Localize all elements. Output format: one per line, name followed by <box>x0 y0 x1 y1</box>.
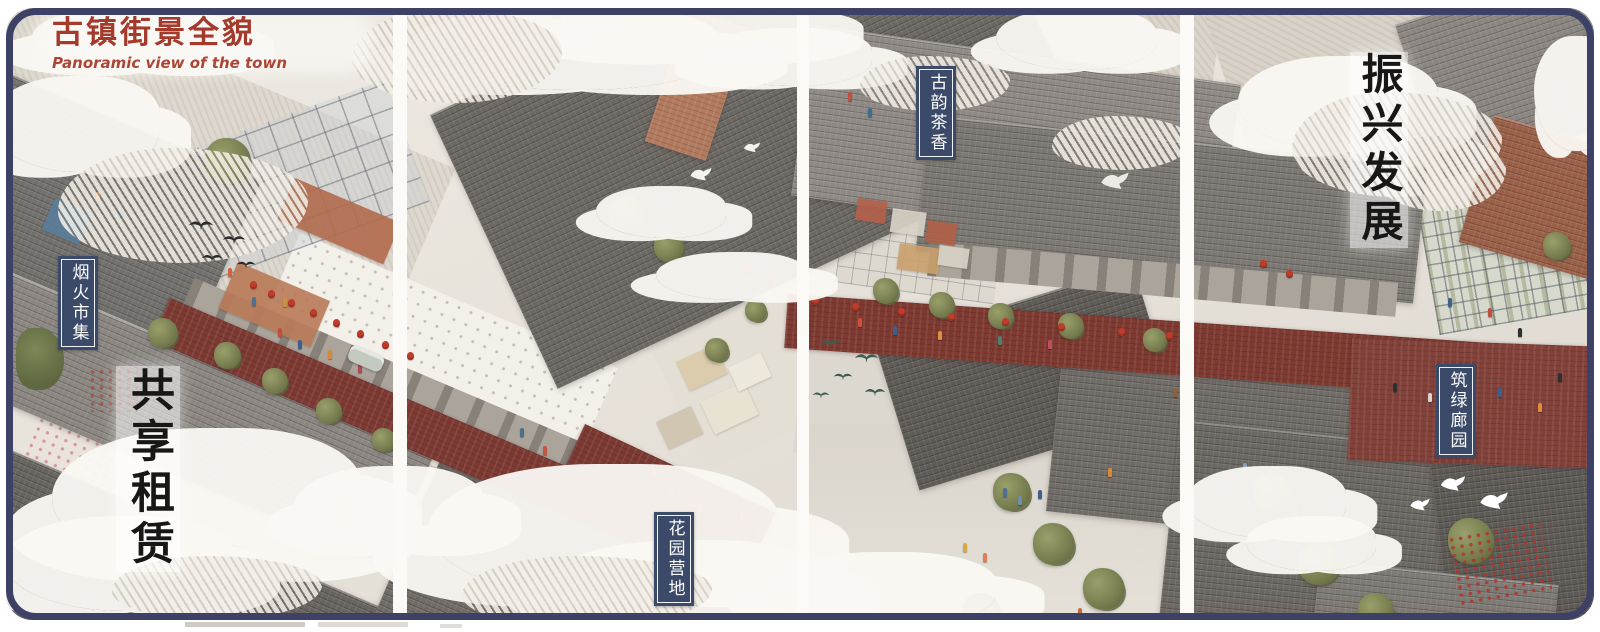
cloud-shape <box>996 8 1156 70</box>
swallow-icon <box>222 230 246 249</box>
tree-shape <box>214 342 241 369</box>
person-figure <box>1173 388 1177 397</box>
person-figure <box>228 268 232 277</box>
canopy-shape <box>937 245 969 269</box>
lantern-shape <box>310 309 317 317</box>
person-figure <box>1518 328 1522 337</box>
cloud-shape <box>656 252 806 300</box>
dove-icon <box>1477 490 1511 515</box>
tree-shape <box>1543 232 1571 260</box>
lantern-shape <box>1118 328 1125 336</box>
panel-divider <box>797 8 809 620</box>
cloud-shape <box>1246 516 1376 571</box>
cropped-text-remnant <box>318 622 408 627</box>
person-figure <box>858 318 862 327</box>
person-figure <box>1108 468 1112 477</box>
lantern-shape <box>898 308 905 316</box>
slogan-shared-rental: 共享租赁 <box>116 366 180 572</box>
person-figure <box>1038 490 1042 499</box>
lantern-shape <box>1260 260 1267 268</box>
person-figure <box>983 553 987 562</box>
slogan-revitalize: 振兴发展 <box>1350 52 1408 248</box>
person-figure <box>1048 340 1052 349</box>
person-figure <box>868 108 872 117</box>
page-subtitle: Panoramic view of the town <box>52 54 287 72</box>
swallow-icon <box>833 366 853 385</box>
person-figure <box>1558 373 1562 382</box>
lantern-shape <box>1286 270 1293 278</box>
swallow-icon <box>812 384 830 403</box>
slogan-revitalize-text: 振兴发展 <box>1358 52 1400 248</box>
person-figure <box>252 297 256 306</box>
area-label-green-corridor-text: 筑绿廊园 <box>1448 371 1465 451</box>
cropped-text-remnant <box>440 624 462 628</box>
tree-shape <box>873 278 899 304</box>
slogan-shared-rental-text: 共享租赁 <box>126 367 170 571</box>
panorama-rendering: 共享租赁 振兴发展 烟火市集 花园营地 古韵茶香 筑绿廊园 古镇街景全貌 Pan… <box>6 8 1594 620</box>
tree-shape <box>988 303 1014 329</box>
area-label-green-corridor: 筑绿廊园 <box>1436 364 1476 458</box>
title-block: 古镇街景全貌 Panoramic view of the town <box>52 16 287 72</box>
dove-icon <box>1438 474 1468 497</box>
lantern-shape <box>852 303 859 311</box>
area-label-garden-camp-text: 花园营地 <box>666 519 683 599</box>
dove-icon <box>1408 497 1432 516</box>
tree-shape <box>993 473 1031 511</box>
lantern-shape <box>1166 332 1173 340</box>
swallow-icon <box>188 216 214 235</box>
person-figure <box>543 446 547 455</box>
tree-shape <box>148 318 178 348</box>
dove-icon <box>1098 170 1132 195</box>
person-figure <box>1078 608 1082 617</box>
swallow-icon <box>201 248 223 267</box>
tree-shape <box>705 338 729 362</box>
lantern-shape <box>250 281 257 289</box>
person-figure <box>1448 298 1452 307</box>
swallow-icon <box>236 254 256 273</box>
lantern-shape <box>1058 323 1065 331</box>
person-figure <box>328 350 332 359</box>
lantern-shape <box>1002 318 1009 326</box>
cloud-shape <box>702 28 872 86</box>
person-figure <box>848 92 852 101</box>
person-figure <box>938 331 942 340</box>
person-figure <box>1488 308 1492 317</box>
panel-divider <box>393 8 407 620</box>
tree-shape <box>262 368 288 394</box>
tree-shape <box>316 398 342 424</box>
tree-shape <box>1143 328 1167 352</box>
tree-shape <box>1033 523 1075 565</box>
area-label-tea-fragrance: 古韵茶香 <box>916 66 956 160</box>
person-figure <box>1428 393 1432 402</box>
person-figure <box>283 298 287 307</box>
canopy-shape <box>855 198 888 224</box>
design-board: 共享租赁 振兴发展 烟火市集 花园营地 古韵茶香 筑绿廊园 古镇街景全貌 Pan… <box>0 0 1600 632</box>
lantern-shape <box>948 313 955 321</box>
swallow-icon <box>854 348 879 367</box>
person-figure <box>1393 383 1397 392</box>
lantern-shape <box>357 330 364 338</box>
person-figure <box>1498 388 1502 397</box>
person-figure <box>963 543 967 552</box>
person-figure <box>520 428 524 437</box>
swallow-icon <box>864 382 886 401</box>
panel-divider <box>1180 8 1194 620</box>
area-label-garden-camp: 花园营地 <box>654 512 694 606</box>
area-label-tea-fragrance-text: 古韵茶香 <box>928 73 945 153</box>
lantern-shape <box>382 341 389 349</box>
swallow-icon <box>820 333 842 352</box>
canopy-shape <box>925 220 958 246</box>
canopy-shape <box>890 208 927 236</box>
lantern-shape <box>812 297 819 305</box>
lantern-shape <box>333 319 340 327</box>
person-figure <box>1018 496 1022 505</box>
tree-shape <box>745 300 767 322</box>
area-label-market-text: 烟火市集 <box>70 263 87 343</box>
page-title: 古镇街景全貌 <box>52 16 287 52</box>
tree-shape <box>1083 568 1125 610</box>
area-label-market: 烟火市集 <box>58 256 98 350</box>
person-figure <box>298 340 302 349</box>
dove-icon <box>688 166 714 186</box>
dove-icon <box>742 138 762 157</box>
person-figure <box>278 328 282 337</box>
lantern-shape <box>268 290 275 298</box>
person-figure <box>1003 488 1007 497</box>
cloud-shape <box>596 186 726 238</box>
person-figure <box>998 336 1002 345</box>
lantern-shape <box>288 299 295 307</box>
lantern-shape <box>407 352 414 360</box>
cropped-text-remnant <box>185 622 305 627</box>
person-figure <box>893 326 897 335</box>
bush-shape <box>16 328 64 390</box>
person-figure <box>1538 403 1542 412</box>
